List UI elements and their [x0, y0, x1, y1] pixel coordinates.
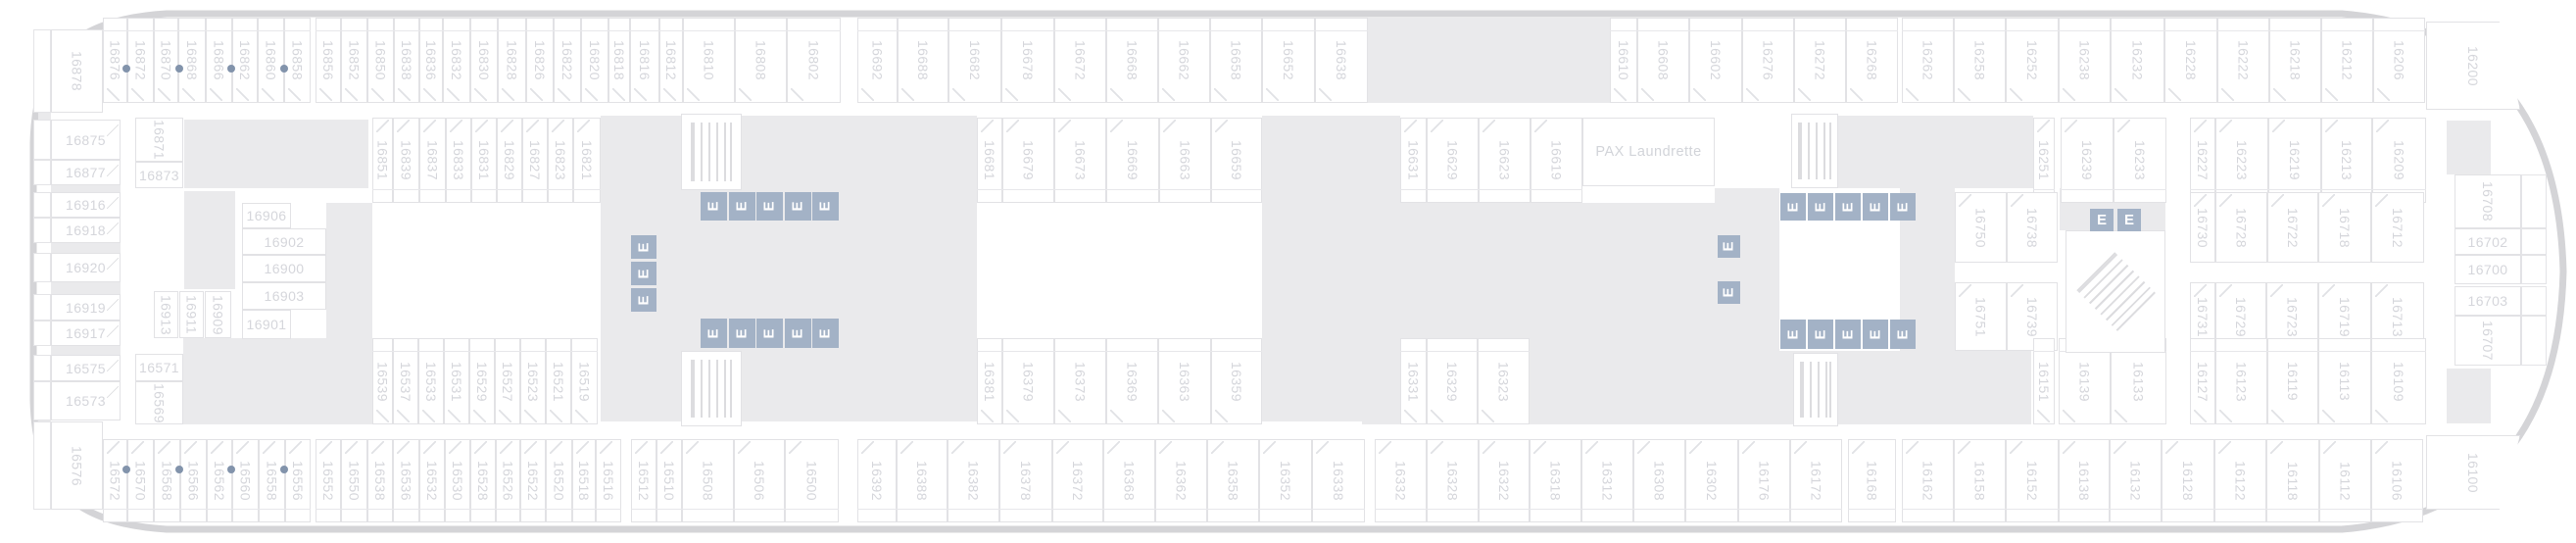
cabin-number-label: 16331: [1407, 362, 1421, 402]
cabin-number-label: 16729: [2234, 297, 2248, 337]
cabin-number-label: 16909: [212, 295, 225, 335]
cabin-door-mark: [663, 88, 676, 101]
cabin-number-label: 16808: [754, 40, 768, 80]
cabin-16560: 16560: [232, 439, 259, 522]
cabin-number-label: 16608: [1657, 40, 1671, 80]
cabin-16112: 16112: [2319, 439, 2371, 522]
cabin-number-label: 16521: [552, 362, 565, 402]
balcony-cell: [33, 160, 51, 185]
cabin-number-label: 16508: [702, 461, 715, 501]
balcony-rail-line: [1211, 189, 1262, 190]
cabin-number-label: 16873: [139, 169, 179, 182]
balcony-rail-line: [372, 351, 393, 352]
cabin-door-mark: [576, 441, 589, 454]
cabin-door-mark: [1689, 441, 1702, 454]
elevator-letter: E: [1722, 241, 1736, 251]
cabin-number-label: 16719: [2338, 297, 2352, 337]
balcony-rail-line: [683, 30, 735, 31]
cabin-16870: 16870: [154, 18, 178, 103]
balcony-rail-line: [496, 509, 520, 510]
cabin-number-label: 16862: [238, 40, 252, 80]
cabin-number-label: 16802: [807, 40, 821, 80]
cabin-16363: 16363: [1158, 338, 1211, 424]
cabin-16830: 16830: [470, 18, 498, 103]
elevator-icon: E: [1863, 320, 1888, 349]
cabin-number-label: 16833: [452, 140, 465, 180]
elevator-letter: E: [1895, 329, 1910, 339]
cabin-door-mark: [524, 410, 537, 422]
cabin-16917: 16917: [51, 321, 121, 346]
elevator-icon: E: [1718, 281, 1740, 304]
balcony-rail-line: [497, 189, 522, 190]
cabin-number-label: 16821: [580, 140, 594, 180]
cabin-16123: 16123: [2215, 338, 2267, 424]
cabin-16506: 16506: [734, 439, 785, 522]
cabin-number-label: 16162: [1921, 461, 1935, 501]
cabin-16571: 16571: [135, 354, 183, 381]
cabin-16252: 16252: [2006, 18, 2059, 103]
cabin-number-label: 16852: [348, 40, 362, 80]
cabin-number-label: 16536: [400, 461, 413, 501]
cabin-16119: 16119: [2267, 338, 2318, 424]
cabin-16338: 16338: [1312, 439, 1365, 522]
cabin-number-label: 16323: [1497, 362, 1511, 402]
balcony-cell: [33, 355, 51, 381]
cabin-door-mark: [1850, 88, 1863, 101]
cabin-number-label: 16531: [450, 362, 463, 402]
public-area: [51, 243, 121, 253]
public-area: [184, 120, 368, 188]
cabin-16369: 16369: [1106, 338, 1158, 424]
cabin-16852: 16852: [341, 18, 367, 103]
cabin-number-label: 16866: [213, 40, 226, 80]
cabin-16860: 16860: [258, 18, 284, 103]
cabin-number-label: 16918: [66, 223, 106, 237]
elevator-letter: E: [762, 328, 777, 338]
cabin-16373: 16373: [1054, 338, 1106, 424]
balcony-rail-line: [1054, 30, 1106, 31]
cabin-number-label: 16138: [2077, 461, 2091, 501]
cabin-number-label: 16602: [1709, 40, 1723, 80]
balcony-rail-line: [1478, 351, 1530, 352]
cabin-door-mark: [107, 441, 120, 454]
cabin-number-label: 16877: [66, 166, 106, 179]
cabin-door-mark: [2219, 120, 2232, 132]
elevator-icon: E: [785, 319, 811, 348]
public-area: [51, 346, 121, 355]
cabin-number-label: 16668: [1126, 40, 1140, 80]
cabin-number-label: 16239: [2080, 140, 2094, 180]
balcony-rail-line: [446, 189, 471, 190]
elevator-icon: E: [1890, 193, 1916, 221]
cabin-16608: 16608: [1637, 18, 1689, 103]
cabin-number-label: 16209: [2393, 140, 2406, 180]
balcony-rail-line: [977, 189, 1002, 190]
cabin-16527: 16527: [495, 338, 520, 424]
cabin-door-mark: [1266, 88, 1279, 101]
balcony-rail-line: [2006, 509, 2059, 510]
cabin-door-mark: [397, 120, 410, 132]
connecting-door-icon: [227, 466, 235, 473]
cabin-door-mark: [107, 124, 119, 136]
cabin-number-label: 16738: [2025, 208, 2039, 248]
cabin-number-label: 16506: [753, 461, 766, 501]
cabin-door-mark: [1404, 410, 1417, 422]
public-area: [601, 116, 977, 421]
cabin-door-mark: [1959, 284, 1971, 297]
balcony-rail-line: [948, 509, 999, 510]
cabin-door-mark: [1006, 120, 1019, 132]
balcony-rail-line: [631, 509, 656, 510]
cabin-16837: 16837: [419, 118, 446, 203]
elevator-icon: E: [1863, 193, 1888, 221]
cabin-16652: 16652: [1262, 18, 1315, 103]
cabin-door-mark: [2270, 284, 2283, 297]
balcony-rail-line: [1633, 509, 1685, 510]
cabin-door-mark: [687, 88, 700, 101]
cabin-number-label: 16830: [477, 40, 491, 80]
cabin-number-label: 16920: [66, 261, 106, 274]
cabin-number-label: 16818: [612, 40, 626, 80]
cabin-door-mark: [502, 88, 514, 101]
cabin-number-label: 16837: [426, 140, 440, 180]
cabin-number-label: 16352: [1279, 461, 1292, 501]
elevator-letter: E: [791, 201, 805, 211]
cabin-door-mark: [2375, 284, 2388, 297]
cabin-number-label: 16168: [1866, 461, 1879, 501]
cabin-number-label: 16539: [376, 362, 390, 402]
balcony-rail-line: [2268, 189, 2321, 190]
balcony-rail-line: [546, 509, 572, 510]
balcony-rail-line: [2266, 509, 2319, 510]
cabin-number-label: 16200: [2466, 46, 2480, 86]
cabin-door-mark: [524, 441, 537, 454]
cabin-number-label: 16262: [1921, 40, 1935, 80]
cabin-number-label: 16378: [1019, 461, 1033, 501]
elevator-letter: E: [1840, 329, 1855, 339]
cabin-door-mark: [2270, 441, 2283, 454]
cabin-16550: 16550: [341, 439, 367, 522]
cabin-number-label: 16533: [424, 362, 438, 402]
balcony-rail-line: [469, 351, 495, 352]
cabin-16510: 16510: [656, 439, 682, 522]
cabin-number-label: 16902: [265, 235, 305, 249]
cabin-number-label: 16222: [2237, 40, 2251, 80]
balcony-rail-line: [1400, 351, 1427, 352]
cabin-number-label: 16113: [2338, 362, 2352, 401]
elevator-letter: E: [818, 328, 833, 338]
cabin-door-mark: [1005, 88, 1018, 101]
stairs-icon: [1793, 353, 1838, 426]
balcony-rail-line: [2373, 30, 2425, 31]
cabin-16673: 16673: [1054, 118, 1106, 203]
balcony-rail-line: [495, 351, 520, 352]
cabin-number-label: 16363: [1178, 362, 1191, 402]
cabin-door-mark: [184, 441, 197, 454]
balcony-rail-line: [2321, 30, 2373, 31]
cabin-number-label: 16109: [2392, 362, 2406, 402]
cabin-16902: 16902: [242, 228, 326, 255]
cabin-16521: 16521: [546, 338, 571, 424]
cabin-16900: 16900: [242, 255, 326, 282]
stairs-icon: [681, 351, 742, 426]
cabin-door-mark: [2376, 120, 2389, 132]
cabin-number-label: 16679: [1022, 140, 1036, 180]
balcony-rail-line: [2162, 509, 2214, 510]
cabin-door-mark: [1162, 410, 1175, 422]
cabin-16222: 16222: [2217, 18, 2269, 103]
cabin-16568: 16568: [154, 439, 180, 522]
cabin-door-mark: [575, 410, 588, 422]
cabin-number-label: 16870: [160, 40, 173, 80]
balcony-rail-line: [393, 189, 419, 190]
cabin-16672: 16672: [1054, 18, 1106, 103]
cabin-16378: 16378: [999, 439, 1052, 522]
cabin-door-mark: [2375, 441, 2388, 454]
elevator-icon: E: [2090, 209, 2114, 231]
cabin-16707: 16707: [2454, 316, 2521, 366]
cabin-number-label: 16571: [139, 361, 179, 374]
cabin-16918: 16918: [51, 218, 121, 243]
balcony-rail-line: [2215, 351, 2267, 352]
balcony-rail-line: [103, 509, 127, 510]
balcony-rail-line: [2061, 189, 2114, 190]
cabin-number-label: 16312: [1601, 461, 1615, 501]
cabin-door-mark: [2117, 120, 2130, 132]
cabin-number-label: 16831: [477, 140, 491, 180]
cabin-door-mark: [499, 410, 511, 422]
cabin-16530: 16530: [445, 439, 470, 522]
cabin-16823: 16823: [548, 118, 573, 203]
cabin-number-label: 16832: [450, 40, 463, 80]
cabin-16913: 16913: [154, 291, 178, 338]
cabin-door-mark: [474, 88, 487, 101]
cabin-number-label: 16106: [2391, 461, 2405, 501]
cabin-door-mark: [107, 88, 120, 101]
cabin-door-mark: [550, 441, 562, 454]
cabin-door-mark: [2168, 88, 2181, 101]
balcony-rail-line: [571, 351, 598, 352]
balcony-rail-line: [520, 509, 546, 510]
elevator-icon: E: [785, 192, 811, 221]
balcony-cell: [33, 381, 51, 420]
balcony-rail-line: [1685, 509, 1738, 510]
cabin-number-label: 16537: [399, 362, 413, 402]
cabin-16572: 16572: [103, 439, 127, 522]
cabin-16223: 16223: [2215, 118, 2268, 203]
stairs-steps: [2076, 252, 2156, 331]
cabin-door-mark: [2010, 88, 2022, 101]
balcony-rail-line: [1001, 30, 1054, 31]
public-area: [183, 338, 372, 424]
cabin-number-label: 16172: [1810, 461, 1823, 501]
cabin-number-label: 16516: [602, 461, 615, 501]
elevator-icon: E: [2117, 209, 2141, 231]
elevator-letter: E: [1722, 287, 1736, 297]
cabin-door-mark: [2194, 194, 2207, 207]
cabin-16916: 16916: [51, 192, 121, 218]
cabin-16362: 16362: [1155, 439, 1207, 522]
public-area: [184, 191, 235, 289]
cabin-number-label: 16681: [983, 140, 996, 180]
cabin-number-label: 16659: [1230, 140, 1243, 180]
cabin-16358: 16358: [1207, 439, 1259, 522]
cabin-number-label: 16228: [2184, 40, 2198, 80]
cabin-door-mark: [1058, 120, 1071, 132]
cabin-number-label: 16218: [2289, 40, 2303, 80]
cabin-number-label: 16669: [1126, 140, 1140, 180]
cabin-door-mark: [1742, 441, 1755, 454]
cabin-16828: 16828: [498, 18, 526, 103]
cabin-number-label: 16858: [291, 40, 305, 80]
cabin-16536: 16536: [393, 439, 419, 522]
cabin-door-mark: [1056, 441, 1069, 454]
cabin-number-label: 16631: [1407, 140, 1421, 180]
cabin-16558: 16558: [259, 439, 285, 522]
cabin-16575: 16575: [51, 355, 121, 381]
balcony-rail-line: [1479, 189, 1531, 190]
public-area: [1715, 188, 1779, 351]
cabin-16332: 16332: [1375, 439, 1427, 522]
balcony-rail-line: [232, 30, 258, 31]
cabin-door-mark: [107, 165, 119, 176]
cabin-door-mark: [423, 120, 436, 132]
public-area: [2447, 121, 2491, 174]
cabin-door-mark: [2194, 410, 2207, 422]
cabin-16368: 16368: [1103, 439, 1155, 522]
cabin-16802: 16802: [787, 18, 841, 103]
elevator-letter: E: [2097, 213, 2107, 227]
cabin-number-label: 16560: [239, 461, 253, 501]
cabin-16831: 16831: [471, 118, 497, 203]
cabin-number-label: 16550: [348, 461, 362, 501]
elevator-icon: E: [1808, 193, 1833, 221]
elevator-icon: E: [1890, 320, 1916, 349]
cabin-number-label: 16856: [321, 40, 335, 80]
balcony-rail-line: [470, 509, 496, 510]
cabin-16388: 16388: [897, 439, 948, 522]
cabin-16682: 16682: [948, 18, 1001, 103]
public-area: [1400, 203, 1715, 351]
cabin-door-mark: [236, 441, 249, 454]
cabin-16856: 16856: [316, 18, 341, 103]
cabin-number-label: 16823: [554, 140, 567, 180]
balcony-cell: [2521, 286, 2547, 316]
cabin-door-mark: [1110, 88, 1123, 101]
cabin-door-mark: [1746, 88, 1759, 101]
cabin-number-label: 16382: [967, 461, 981, 501]
cabin-16359: 16359: [1211, 338, 1262, 424]
balcony-cell: [2521, 316, 2547, 366]
balcony-rail-line: [127, 30, 154, 31]
cabin-number-label: 16700: [2468, 263, 2508, 276]
elevator-icon: E: [1835, 320, 1861, 349]
stairs-icon: [2066, 230, 2165, 353]
cabin-number-label: 16529: [475, 362, 489, 402]
cabin-16538: 16538: [367, 439, 393, 522]
cabin-door-mark: [1319, 88, 1332, 101]
cabin-16829: 16829: [497, 118, 522, 203]
cabin-16862: 16862: [232, 18, 258, 103]
cabin-16106: 16106: [2371, 439, 2423, 522]
cabin-16308: 16308: [1633, 439, 1685, 522]
cabin-door-mark: [107, 197, 119, 209]
cabin-number-label: 16875: [66, 133, 106, 147]
balcony-rail-line: [2269, 30, 2321, 31]
public-area: [1368, 18, 1610, 103]
cabin-number-label: 16227: [2196, 140, 2210, 180]
cabin-number-label: 16662: [1178, 40, 1191, 80]
cabin-door-mark: [263, 441, 275, 454]
cabin-16302: 16302: [1685, 439, 1738, 522]
cabin-16239: 16239: [2061, 118, 2114, 203]
stairs-icon: [1791, 114, 1838, 188]
cabin-number-label: 16358: [1227, 461, 1240, 501]
balcony-rail-line: [1848, 509, 1896, 510]
cabin-door-mark: [1379, 441, 1391, 454]
public-area: [1747, 351, 2031, 424]
cabin-number-label: 16112: [2339, 462, 2353, 501]
cabin-number-label: 16328: [1446, 461, 1460, 501]
balcony-rail-line: [207, 509, 232, 510]
cabin-16209: 16209: [2372, 118, 2426, 203]
cabin-16118: 16118: [2266, 439, 2319, 522]
cabin-16372: 16372: [1052, 439, 1103, 522]
cabin-door-mark: [2063, 88, 2075, 101]
cabin-16903: 16903: [242, 282, 326, 310]
cabin-door-mark: [1482, 441, 1495, 454]
cabin-number-label: 16868: [185, 40, 199, 80]
elevator-letter: E: [706, 201, 721, 211]
cabin-number-label: 16919: [66, 301, 106, 315]
cabin-16566: 16566: [180, 439, 207, 522]
cabin-16876: 16876: [103, 18, 127, 103]
balcony-rail-line: [1106, 30, 1158, 31]
cabin-16508: 16508: [682, 439, 734, 522]
elevator-letter: E: [818, 201, 833, 211]
cabin-number-label: 16573: [66, 394, 106, 408]
balcony-rail-line: [1790, 509, 1842, 510]
cabin-16329: 16329: [1427, 338, 1478, 424]
cabin-16537: 16537: [393, 338, 418, 424]
cabin-16212: 16212: [2321, 18, 2373, 103]
balcony-rail-line: [787, 30, 841, 31]
cabin-door-mark: [2322, 284, 2335, 297]
elevator-letter: E: [1785, 329, 1800, 339]
public-area: [1837, 116, 2033, 188]
cabin-16678: 16678: [1001, 18, 1054, 103]
cabin-16569: 16569: [135, 381, 183, 424]
balcony-rail-line: [1155, 509, 1207, 510]
cabin-number-label: 16219: [2288, 140, 2302, 180]
cabin-number-label: 16702: [2468, 235, 2508, 249]
cabin-door-mark: [450, 120, 462, 132]
balcony-cell: [33, 29, 51, 113]
cabin-number-label: 16570: [134, 461, 148, 501]
cabin-door-mark: [2011, 284, 2023, 297]
cabin-number-label: 16379: [1022, 362, 1036, 402]
balcony-rail-line: [2319, 509, 2371, 510]
balcony-rail-line: [2059, 30, 2111, 31]
cabin-number-label: 16851: [376, 140, 390, 180]
cabin-door-mark: [1585, 441, 1598, 454]
balcony-rail-line: [1427, 509, 1479, 510]
cabin-16833: 16833: [446, 118, 471, 203]
balcony-rail-line: [1954, 509, 2006, 510]
cabin-number-label: 16707: [2481, 321, 2495, 361]
cabin-door-mark: [1534, 120, 1547, 132]
cabin-door-mark: [2219, 284, 2232, 297]
